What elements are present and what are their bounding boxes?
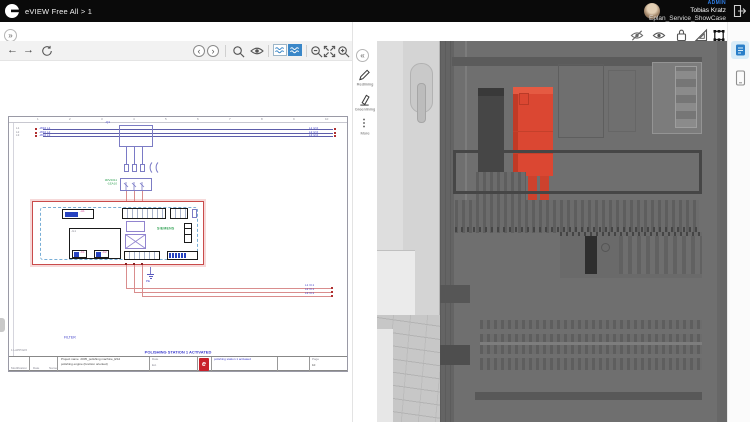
terminal-box (124, 251, 160, 260)
greenlining-button[interactable] (356, 91, 372, 107)
out-ref: L2 /3.1 (305, 288, 314, 291)
floor-sliver (377, 329, 393, 422)
viewer-toolbar: ← → ‹ › (0, 41, 352, 61)
ruler-num: 3 (101, 118, 103, 121)
tb-ed-label: Ed. (152, 364, 157, 367)
more-label: More (352, 131, 378, 136)
tb-line (211, 357, 212, 372)
transformer-symbol (125, 234, 146, 249)
panel-shadow (717, 41, 727, 422)
collapse-panel-button[interactable]: « (356, 49, 369, 62)
back-button[interactable]: ← (7, 44, 18, 56)
bus-ref: -W10 L3 (39, 134, 50, 137)
device-detail (519, 93, 529, 105)
search-button[interactable] (231, 44, 245, 58)
eplan-titleblock-logo: e (199, 358, 209, 371)
box-label: -G1 (71, 230, 76, 233)
search-icon (232, 45, 245, 58)
duct-block (440, 345, 470, 365)
wire-red-h (134, 292, 331, 293)
right-sidebar (727, 22, 750, 422)
more-button[interactable]: ⋮ (356, 115, 372, 131)
bus-ref: L3 /2.0 (309, 134, 318, 137)
app-title: eVIEW Free All > 1 (25, 7, 92, 16)
logout-icon (733, 4, 746, 18)
tb-name-label: Name (49, 367, 57, 370)
ruler-num: 8 (261, 118, 263, 121)
eplan-logo-icon (4, 3, 20, 19)
toggle-visibility-button[interactable] (250, 44, 264, 58)
chip-label: -K1 (80, 251, 85, 254)
hide-parts-button[interactable] (630, 28, 644, 42)
wire-duct-horizontal (453, 150, 702, 194)
page-left-margin (9, 123, 14, 357)
trip-curve-symbol (148, 162, 162, 173)
status-text: POLISHING STATION 1 ACTIVATED (94, 350, 263, 355)
ruler-num: 2 (69, 118, 71, 121)
supply-component-box (119, 125, 153, 147)
out-marker (331, 287, 333, 289)
next-page-button[interactable]: › (207, 45, 219, 57)
tb-drawing-desc: polishing station 1 activated (214, 358, 251, 361)
vertical-module (184, 223, 192, 243)
wire-red-h (126, 288, 331, 289)
terminal-rail (480, 358, 702, 370)
plc-dial (601, 243, 610, 252)
eye-icon (652, 29, 666, 42)
motor-breaker-box (120, 178, 152, 191)
bus-ref: L1 /2.0 (309, 127, 318, 130)
fuse-symbol (132, 164, 137, 172)
bottom-rail (475, 392, 702, 400)
chip-fill (96, 252, 101, 257)
forward-button[interactable]: → (23, 44, 34, 56)
wire (126, 147, 127, 164)
wave-icon-active (289, 45, 301, 55)
out-marker (331, 291, 333, 293)
wire-red-h (142, 296, 331, 297)
terminal-rail (480, 320, 702, 329)
duct-block (440, 285, 470, 303)
filter-label: FILTER (64, 336, 76, 340)
user-info: ADMIN Tobias Kratz Eplan_Service_ShowCas… (649, 1, 726, 22)
canvas-side-handle[interactable] (0, 318, 5, 332)
siemens-logo-text: SIEMENS (157, 227, 175, 231)
user-name: Tobias Kratz (649, 8, 726, 15)
bus-line-l3 (43, 136, 333, 137)
project-name: Eplan_Service_ShowCase (649, 16, 726, 23)
title-block: Project name 2005_polishing machine_ES4 … (9, 356, 347, 371)
bus-marker (35, 132, 37, 134)
tb-line (29, 357, 30, 372)
rail-line (480, 342, 702, 345)
eplan-logo-letter: e (202, 361, 206, 368)
fuse-symbol (124, 164, 129, 172)
bus-label: L1 (16, 127, 19, 130)
topbar: eVIEW Free All > 1 ADMIN Tobias Kratz Ep… (0, 0, 750, 22)
pe-bar (149, 276, 153, 277)
relay-symbol (126, 221, 145, 232)
cabinet-3d-view[interactable] (377, 41, 727, 422)
tb-line (309, 357, 310, 372)
contactor-cap (478, 88, 504, 96)
ruler-num: 10 (325, 118, 328, 121)
chip-label: -K2 (102, 251, 107, 254)
view-mode-light-button[interactable] (273, 44, 287, 56)
toolbar-divider (306, 45, 307, 57)
tb-line (277, 357, 278, 372)
lock-icon (675, 28, 688, 42)
lock-view-button[interactable] (674, 28, 688, 42)
bus-marker (35, 135, 37, 137)
wire (142, 147, 143, 164)
set-square-icon (694, 28, 708, 42)
pen-icon (358, 68, 371, 81)
wire (134, 147, 135, 164)
bus-ref: -W10 L1 (39, 127, 50, 130)
user-role-badge: ADMIN (649, 1, 726, 6)
highlighted-component-box[interactable]: -A1 -G1 -K1 -K2 SIEMENS (32, 201, 204, 265)
ruler-num: 7 (229, 118, 231, 121)
wave-icon (274, 45, 286, 55)
small-element (192, 209, 197, 218)
wire-red (126, 265, 127, 288)
show-parts-button[interactable] (652, 28, 666, 42)
tb-line (57, 357, 58, 372)
fit-to-screen-button[interactable] (322, 44, 336, 58)
greenlining-label: Greenlining (352, 107, 378, 112)
wire-red (142, 191, 143, 201)
fuse-symbol (140, 164, 145, 172)
toolbar-divider (225, 45, 226, 57)
drive-module (652, 62, 702, 134)
page-ruler (9, 117, 347, 123)
bus-marker (334, 132, 336, 134)
display-chip (65, 212, 78, 217)
terminal-box (122, 208, 166, 219)
plc-modules (619, 236, 702, 274)
out-ref: L3 /3.1 (305, 292, 314, 295)
highlighter-icon (358, 93, 371, 106)
eview-app: eVIEW Free All > 1 ADMIN Tobias Kratz Ep… (0, 0, 750, 422)
fit-screen-icon (323, 45, 336, 58)
ruler-num: 4 (133, 118, 135, 121)
bus-marker (334, 135, 336, 137)
bus-label: L3 (16, 134, 19, 137)
tb-date-label2: Date (33, 367, 39, 370)
prev-page-button[interactable]: ‹ (193, 45, 205, 57)
breaker-type-label: 3RV2011 -1EA10 (92, 179, 117, 186)
device-icon (735, 70, 746, 86)
redlining-label: Redlining (352, 82, 378, 87)
tb-project-desc: polishing engine (function oriented) (61, 363, 108, 366)
component-outline (608, 70, 636, 132)
bus-line-l1 (43, 129, 333, 130)
pe-wire (150, 267, 151, 274)
refresh-icon (41, 45, 53, 57)
drive-cells (675, 66, 697, 128)
measure-button[interactable] (694, 28, 708, 42)
ruler-num: 6 (197, 118, 199, 121)
tb-line (197, 357, 198, 372)
document-icon (735, 44, 746, 56)
tb-line (149, 357, 150, 372)
eye-off-icon (630, 29, 644, 42)
logout-button[interactable] (733, 4, 746, 23)
terminal-box (170, 208, 188, 219)
redlining-button[interactable] (356, 66, 372, 82)
plc-slot (585, 236, 597, 274)
wire-red (134, 191, 135, 201)
view-mode-color-button[interactable] (288, 44, 302, 56)
refresh-button[interactable] (40, 44, 54, 58)
pe-bar (150, 278, 152, 279)
bus-line-l2 (43, 133, 333, 134)
tb-page-label: Page (312, 358, 319, 361)
schematic-page[interactable]: 1 2 3 4 5 6 7 8 9 10 L1 L2 L3 -W10 L1 -W… (8, 116, 348, 372)
terminal-chip (169, 253, 186, 258)
bus-marker (334, 128, 336, 130)
tb-project: Project name 2005_polishing machine_ES4 (61, 358, 120, 361)
plc-rack (560, 232, 702, 278)
out-ref: L1 /3.1 (305, 284, 314, 287)
ruler-num: 1 (37, 118, 39, 121)
select-frame-button[interactable] (712, 28, 726, 42)
zoom-out-icon (310, 45, 323, 58)
out-marker (331, 295, 333, 297)
tb-mod-label: Modification (11, 367, 27, 370)
annotations-tab[interactable] (731, 41, 749, 59)
zoom-out-button[interactable] (309, 44, 323, 58)
ruler-num: 5 (165, 118, 167, 121)
toolbar-divider (268, 45, 269, 57)
pe-bar (147, 274, 154, 275)
tb-page-value: 10 (312, 364, 315, 367)
plc-dots (560, 232, 702, 236)
door-handle (417, 83, 426, 123)
breaker-label: -Q1 (105, 121, 110, 124)
chip-label: -A1 (80, 210, 85, 213)
pe-label: PE (146, 280, 150, 283)
device-tab[interactable] (733, 68, 747, 87)
wire-red (126, 191, 127, 201)
chip-fill (74, 252, 79, 257)
tb-date-label: Date (152, 358, 158, 361)
eye-icon (250, 45, 264, 57)
zoom-in-icon (337, 45, 350, 58)
device-seam (513, 131, 553, 132)
plot-stamp: 1 LAPP32/2 (11, 349, 27, 352)
ruler-num: 9 (293, 118, 295, 121)
zoom-in-button[interactable] (336, 44, 350, 58)
bus-marker (35, 128, 37, 130)
component-outline (558, 64, 604, 138)
